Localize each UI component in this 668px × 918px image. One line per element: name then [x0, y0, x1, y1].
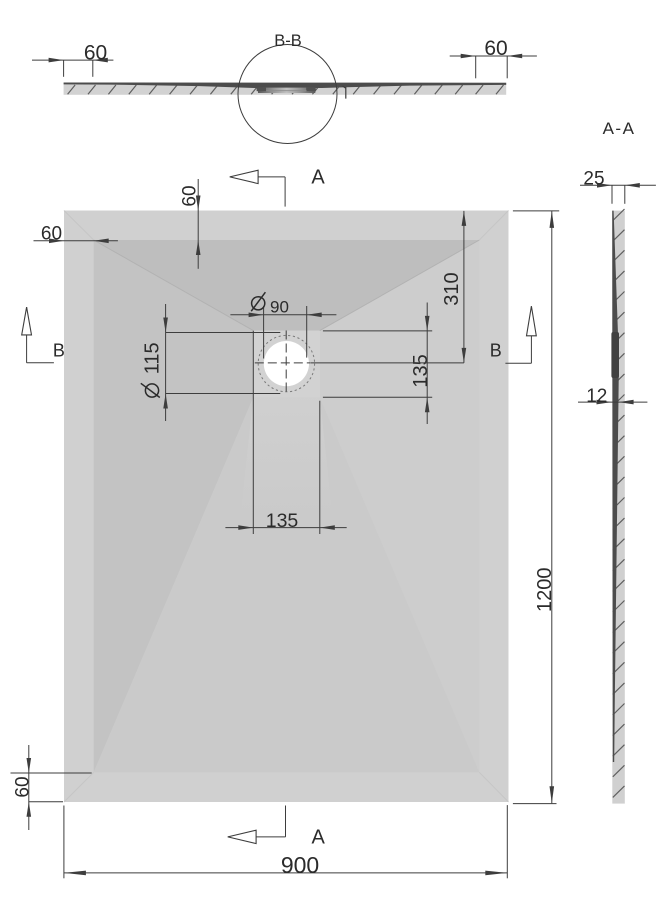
svg-text:B: B — [53, 340, 65, 360]
svg-text:135: 135 — [266, 510, 299, 532]
svg-text:900: 900 — [281, 852, 319, 878]
svg-text:60: 60 — [84, 41, 107, 64]
svg-text:60: 60 — [13, 776, 34, 797]
svg-text:135: 135 — [410, 354, 432, 387]
svg-text:60: 60 — [484, 37, 507, 60]
svg-text:B-B: B-B — [274, 32, 302, 50]
svg-text:12: 12 — [586, 386, 607, 407]
svg-text:310: 310 — [441, 272, 463, 305]
svg-text:115: 115 — [142, 342, 164, 374]
svg-text:A: A — [311, 167, 325, 189]
svg-text:60: 60 — [180, 185, 201, 206]
svg-text:A: A — [312, 827, 326, 849]
svg-text:A-A: A-A — [603, 119, 636, 138]
svg-text:60: 60 — [41, 224, 62, 245]
svg-text:B: B — [490, 341, 502, 361]
svg-text:90: 90 — [270, 297, 289, 316]
svg-text:25: 25 — [583, 169, 604, 190]
svg-text:1200: 1200 — [534, 567, 556, 612]
